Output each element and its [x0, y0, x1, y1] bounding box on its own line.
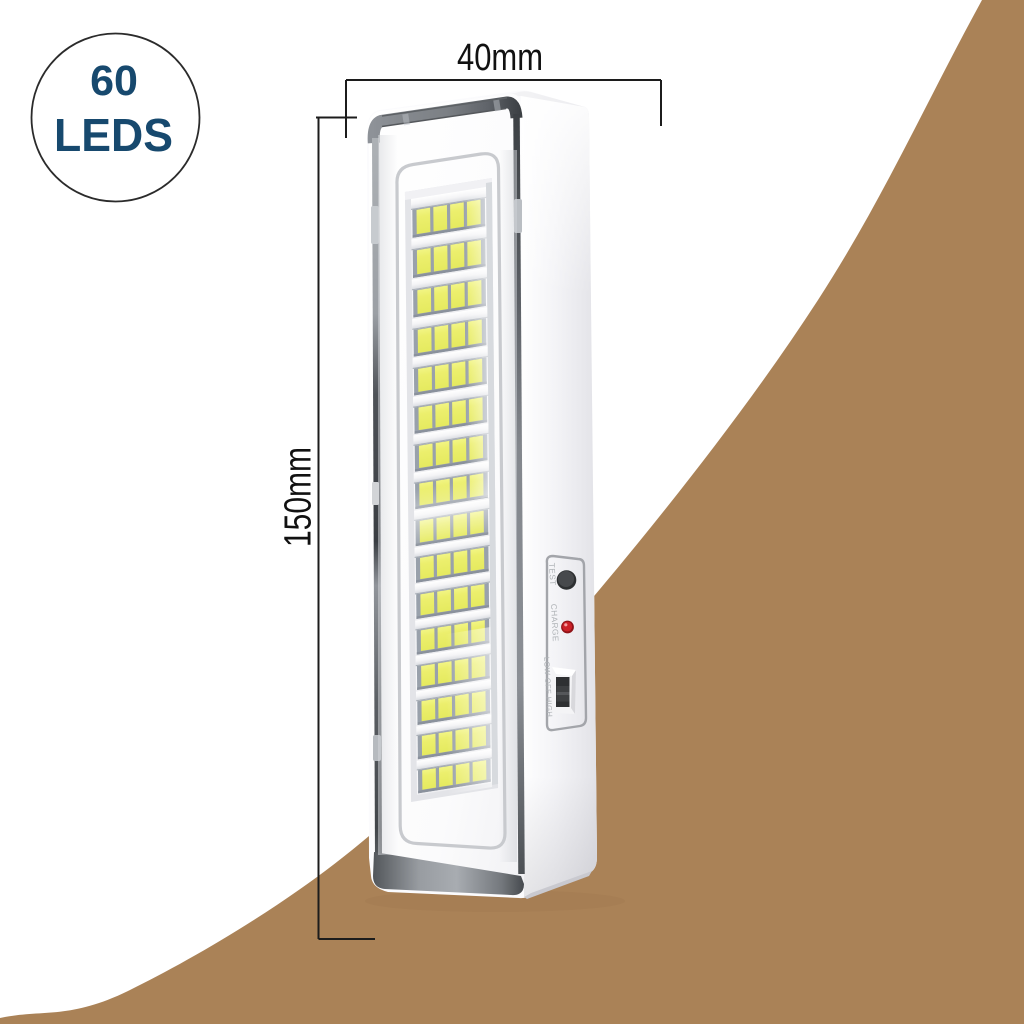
svg-text:150mm: 150mm — [278, 447, 320, 547]
svg-text:TEST: TEST — [547, 563, 557, 586]
svg-text:40mm: 40mm — [457, 37, 543, 79]
svg-text:LEDS: LEDS — [54, 109, 173, 161]
svg-text:60: 60 — [90, 57, 138, 105]
